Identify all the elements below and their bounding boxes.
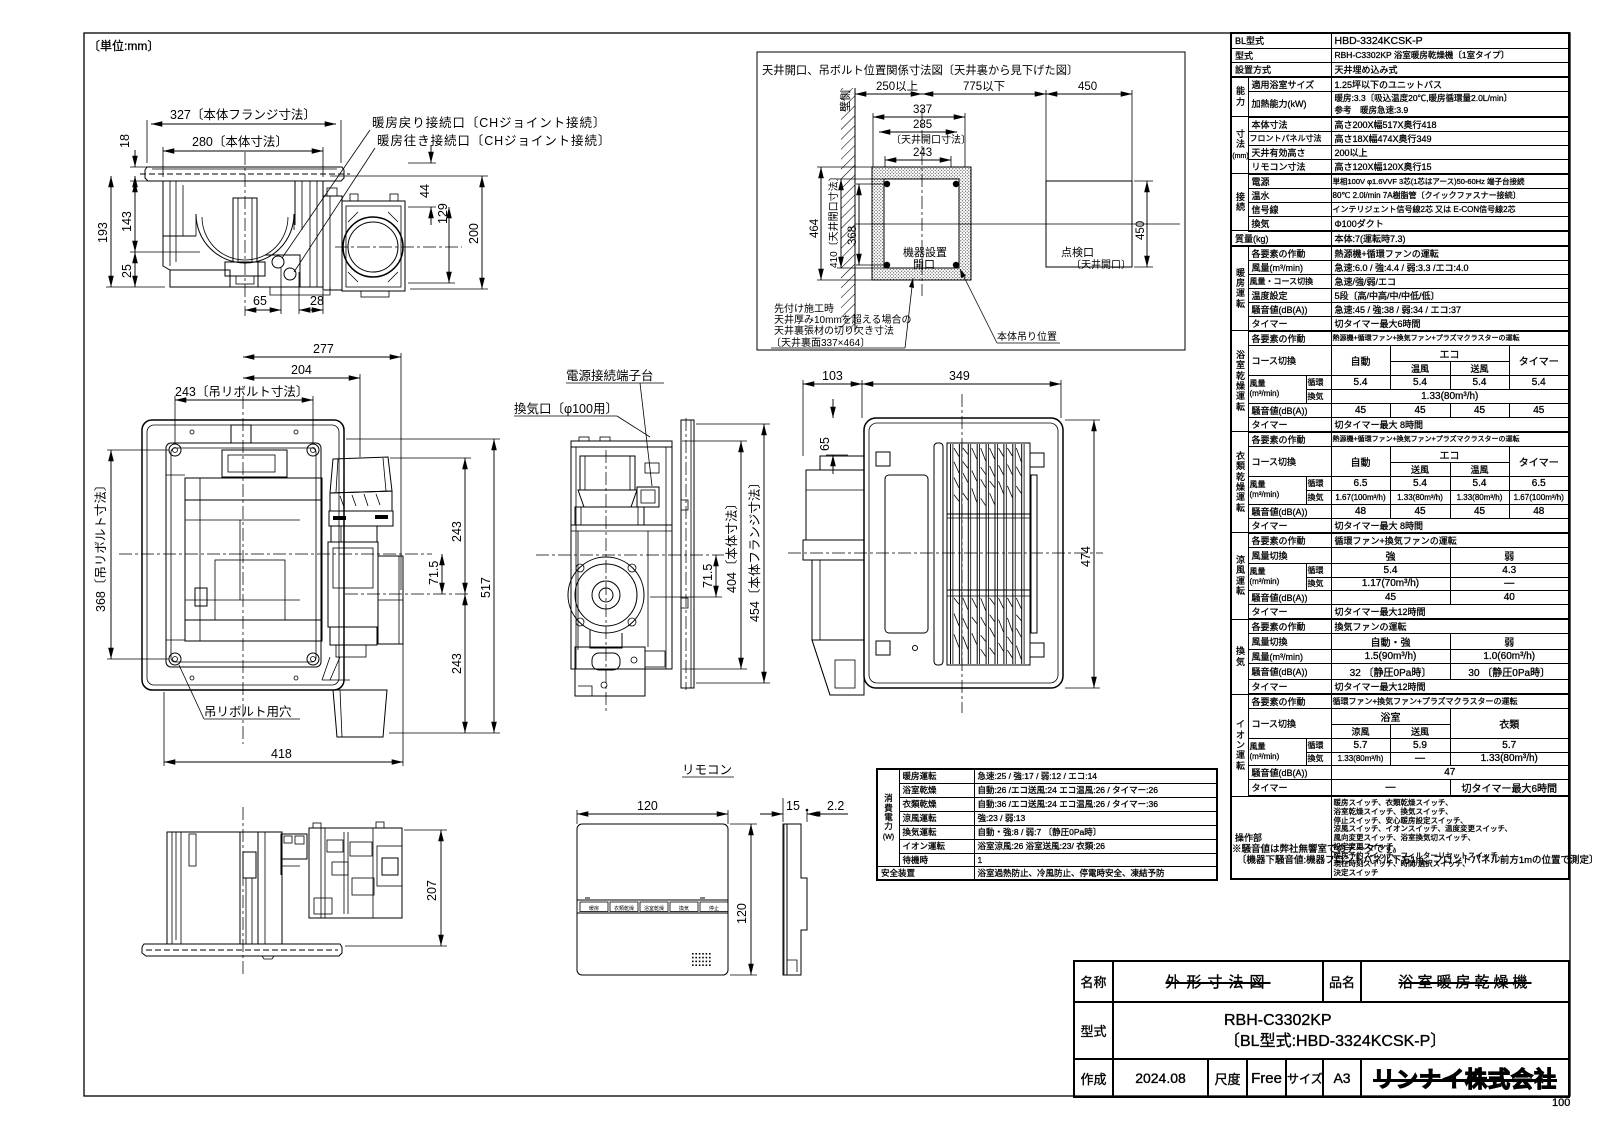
svg-text:換気: 換気	[679, 905, 689, 912]
svg-text:120: 120	[637, 799, 658, 813]
svg-text:120: 120	[735, 903, 749, 924]
svg-text:404〔本体寸法〕: 404〔本体寸法〕	[725, 497, 739, 593]
svg-text:電源接続端子台: 電源接続端子台	[566, 368, 654, 383]
svg-text:点検口: 点検口	[1061, 245, 1094, 259]
svg-text:2.2: 2.2	[827, 799, 844, 813]
svg-text:129: 129	[436, 203, 450, 224]
svg-text:327〔本体フランジ寸法〕: 327〔本体フランジ寸法〕	[170, 108, 316, 122]
svg-text:243: 243	[450, 653, 464, 674]
svg-text:103: 103	[822, 369, 843, 383]
svg-text:368: 368	[847, 226, 859, 245]
svg-text:143: 143	[120, 211, 134, 232]
svg-text:〔天井裏面337×464〕: 〔天井裏面337×464〕	[771, 336, 870, 349]
svg-text:71.5: 71.5	[427, 561, 441, 585]
svg-text:464: 464	[809, 218, 821, 238]
svg-text:285: 285	[913, 119, 932, 131]
svg-text:243: 243	[450, 521, 464, 542]
svg-text:337: 337	[913, 104, 932, 116]
svg-text:474: 474	[1079, 546, 1093, 567]
svg-text:368〔吊リボルト寸法〕: 368〔吊リボルト寸法〕	[94, 479, 108, 612]
svg-text:207: 207	[425, 880, 439, 901]
svg-text:200: 200	[467, 223, 481, 244]
svg-text:天井厚み10mmを超える場合の: 天井厚み10mmを超える場合の	[774, 313, 911, 326]
svg-text:天井裏張材の切り欠き寸法: 天井裏張材の切り欠き寸法	[774, 324, 894, 337]
svg-text:衣類乾燥: 衣類乾燥	[614, 905, 634, 912]
svg-text:243: 243	[913, 147, 932, 159]
svg-text:暖房戻り接続口〔CHジョイント接続〕: 暖房戻り接続口〔CHジョイント接続〕	[372, 115, 606, 130]
svg-text:機器設置: 機器設置	[903, 245, 947, 259]
svg-text:250以上: 250以上	[876, 80, 918, 93]
svg-text:243〔吊リボルト寸法〕: 243〔吊リボルト寸法〕	[175, 385, 308, 399]
svg-text:418: 418	[271, 747, 292, 761]
svg-text:壁側: 壁側	[838, 90, 852, 112]
svg-text:517: 517	[479, 577, 493, 598]
svg-text:暖房往き接続口〔CHジョイント接続〕: 暖房往き接続口〔CHジョイント接続〕	[377, 133, 611, 148]
svg-text:44: 44	[418, 184, 432, 198]
svg-text:暖房: 暖房	[589, 905, 599, 912]
svg-text:開口: 開口	[913, 258, 935, 271]
svg-text:28: 28	[310, 294, 324, 308]
svg-text:410〔天井開口寸法〕: 410〔天井開口寸法〕	[827, 171, 840, 268]
svg-text:リモコン: リモコン	[682, 763, 732, 777]
svg-text:65: 65	[818, 437, 832, 451]
svg-text:換気口〔φ100用〕: 換気口〔φ100用〕	[514, 401, 618, 416]
svg-text:193: 193	[96, 222, 110, 243]
svg-text:71.5: 71.5	[701, 564, 715, 588]
svg-text:本体吊り位置: 本体吊り位置	[997, 330, 1057, 343]
svg-text:25: 25	[120, 264, 134, 278]
svg-text:浴室乾燥: 浴室乾燥	[644, 905, 664, 912]
svg-text:15: 15	[786, 799, 800, 813]
svg-text:450: 450	[1135, 221, 1147, 240]
svg-text:65: 65	[253, 294, 267, 308]
svg-text:280〔本体寸法〕: 280〔本体寸法〕	[192, 135, 288, 149]
svg-text:454〔本体フランジ寸法〕: 454〔本体フランジ寸法〕	[748, 476, 762, 622]
svg-text:18: 18	[118, 134, 132, 148]
svg-text:〔天井開口寸法〕: 〔天井開口寸法〕	[891, 133, 971, 146]
svg-text:天井開口、吊ボルト位置関係寸法図〔天井裏から見下げた図〕: 天井開口、吊ボルト位置関係寸法図〔天井裏から見下げた図〕	[762, 63, 1078, 77]
svg-text:450: 450	[1078, 81, 1097, 93]
svg-text:先付け施工時: 先付け施工時	[774, 302, 834, 315]
svg-text:204: 204	[291, 363, 312, 377]
svg-text:吊リボルト用穴: 吊リボルト用穴	[204, 704, 292, 719]
svg-text:〔天井開口〕: 〔天井開口〕	[1071, 258, 1131, 271]
svg-text:277: 277	[313, 342, 334, 356]
svg-text:停止: 停止	[709, 905, 719, 912]
svg-text:349: 349	[949, 369, 970, 383]
svg-text:775以下: 775以下	[963, 80, 1005, 93]
